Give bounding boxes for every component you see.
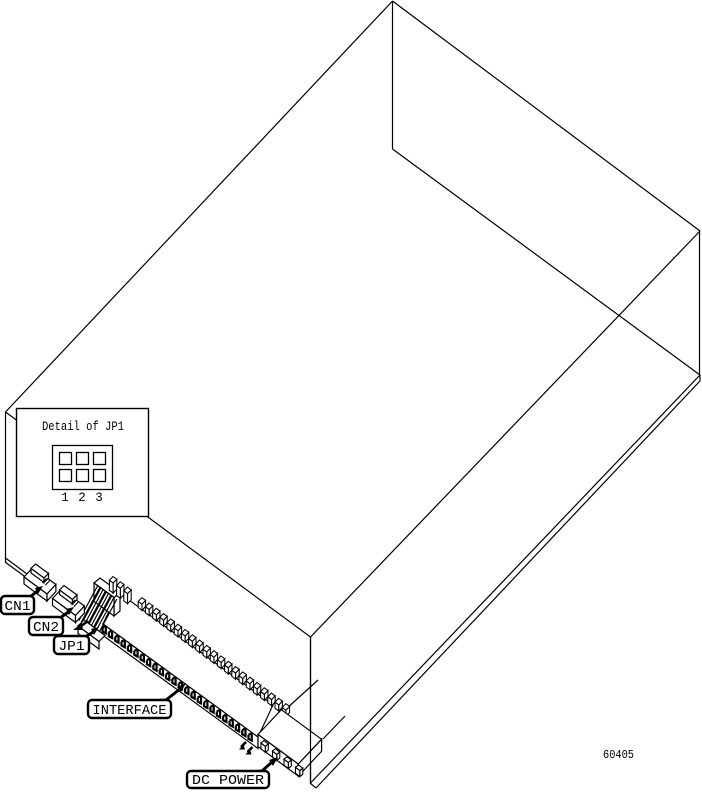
svg-text:60405: 60405 [603,748,634,762]
svg-text:CN2: CN2 [33,621,59,636]
svg-text:3: 3 [95,491,103,505]
svg-text:1: 1 [61,491,69,505]
svg-text:DC POWER: DC POWER [192,774,264,789]
svg-text:Detail of JP1: Detail of JP1 [42,419,124,434]
svg-text:JP1: JP1 [59,640,85,655]
svg-text:2: 2 [78,491,86,505]
svg-text:INTERFACE: INTERFACE [93,704,167,719]
svg-text:CN1: CN1 [5,600,31,615]
